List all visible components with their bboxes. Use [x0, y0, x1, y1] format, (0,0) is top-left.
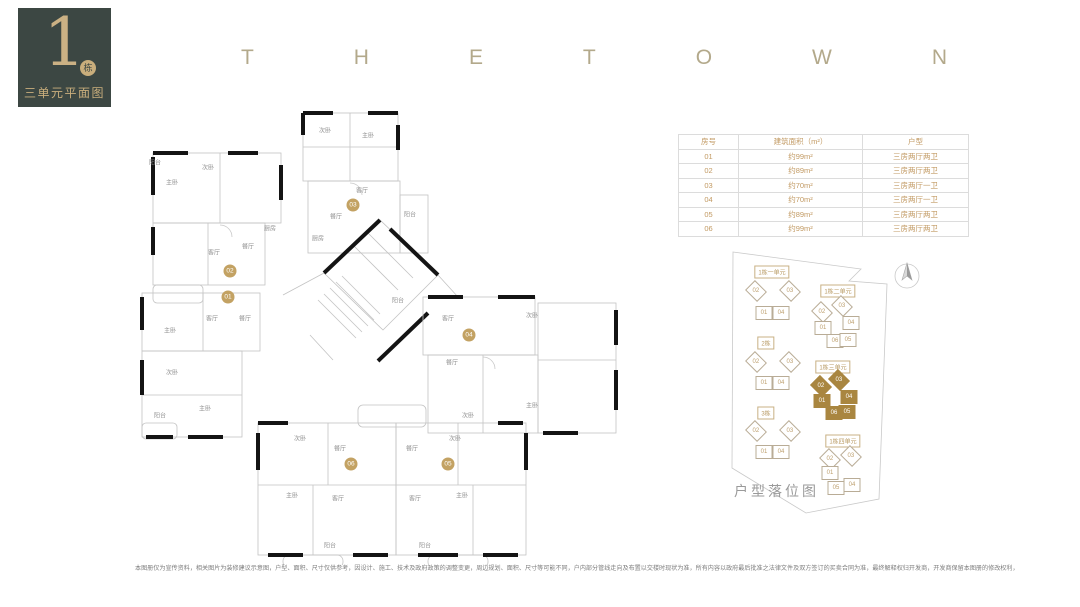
- compass-icon: [895, 263, 919, 288]
- site-unit-box: 04: [843, 316, 860, 330]
- cluster-label: 1栋三单元: [815, 361, 850, 374]
- table-cell: 三房两厅两卫: [863, 149, 969, 164]
- room-label: 餐厅: [242, 242, 254, 251]
- table-cell: 三房两厅两卫: [863, 207, 969, 222]
- title-letter: T: [583, 46, 596, 70]
- title-letter: W: [812, 46, 832, 70]
- room-label: 餐厅: [239, 314, 251, 323]
- table-row: 01约99m²三房两厅两卫: [679, 149, 969, 164]
- title-letter: E: [469, 46, 483, 70]
- room-label: 次卧: [166, 368, 178, 377]
- site-unit-box: 01: [822, 466, 839, 480]
- room-label: 客厅: [206, 314, 218, 323]
- unit-number-badge: 01: [222, 291, 235, 304]
- room-label: 次卧: [449, 434, 461, 443]
- table-header-row: 房号 建筑面积（m²） 户型: [679, 135, 969, 150]
- floor-plan-svg: [128, 105, 628, 565]
- table-cell: 约99m²: [739, 222, 863, 237]
- table-cell: 02: [679, 164, 739, 179]
- table-row: 03约70m²三房两厅一卫: [679, 178, 969, 193]
- table-cell: 约70m²: [739, 178, 863, 193]
- room-label: 客厅: [208, 248, 220, 257]
- room-label: 厨房: [264, 224, 276, 233]
- title-letter: H: [354, 46, 369, 70]
- room-label: 餐厅: [406, 444, 418, 453]
- site-unit-box: 01: [756, 376, 773, 390]
- tower-suffix-circle: 栋: [80, 60, 96, 76]
- area-table-body: 01约99m²三房两厅两卫02约89m²三房两厅两卫03约70m²三房两厅一卫0…: [679, 149, 969, 236]
- col-header-room-no: 房号: [679, 135, 739, 150]
- table-row: 05约89m²三房两厅两卫: [679, 207, 969, 222]
- tower-badge: 1 栋 三单元平面图: [18, 8, 111, 107]
- table-row: 02约89m²三房两厅两卫: [679, 164, 969, 179]
- site-plan-caption: 户型落位图: [734, 481, 819, 501]
- page-title: T H E T O W N: [241, 46, 947, 70]
- room-label: 主卧: [526, 401, 538, 410]
- tower-subtitle: 三单元平面图: [18, 84, 111, 101]
- room-label: 次卧: [294, 434, 306, 443]
- table-cell: 三房两厅一卫: [863, 193, 969, 208]
- table-cell: 约89m²: [739, 164, 863, 179]
- floor-plan: [128, 105, 628, 565]
- table-row: 06约99m²三房两厅两卫: [679, 222, 969, 237]
- unit-number-badge: 06: [345, 458, 358, 471]
- room-label: 主卧: [166, 178, 178, 187]
- room-label: 主卧: [164, 326, 176, 335]
- title-letter: T: [241, 46, 254, 70]
- table-cell: 04: [679, 193, 739, 208]
- room-label: 餐厅: [330, 212, 342, 221]
- room-label: 主卧: [362, 131, 374, 140]
- room-label: 阳台: [324, 541, 336, 550]
- room-label: 厨房: [312, 234, 324, 243]
- site-unit-box: 05: [840, 333, 857, 347]
- room-label: 次卧: [526, 311, 538, 320]
- site-unit-box: 04: [844, 478, 861, 492]
- room-label: 阳台: [149, 158, 161, 167]
- room-label: 阳台: [154, 411, 166, 420]
- tower-number: 1: [18, 10, 111, 76]
- table-cell: 三房两厅一卫: [863, 178, 969, 193]
- title-letter: N: [932, 46, 947, 70]
- cluster-label: 1栋二单元: [820, 285, 855, 298]
- table-cell: 05: [679, 207, 739, 222]
- table-cell: 06: [679, 222, 739, 237]
- site-unit-box: 04: [773, 376, 790, 390]
- site-unit-box: 01: [756, 306, 773, 320]
- col-header-layout: 户型: [863, 135, 969, 150]
- col-header-area: 建筑面积（m²）: [739, 135, 863, 150]
- room-label: 主卧: [199, 404, 211, 413]
- unit-area-table: 房号 建筑面积（m²） 户型 01约99m²三房两厅两卫02约89m²三房两厅两…: [678, 134, 969, 237]
- room-label: 客厅: [332, 494, 344, 503]
- room-label: 次卧: [202, 163, 214, 172]
- room-label: 餐厅: [446, 358, 458, 367]
- site-unit-box: 05: [839, 405, 856, 419]
- room-label: 次卧: [319, 126, 331, 135]
- room-label: 阳台: [392, 296, 404, 305]
- unit-number-badge: 04: [463, 329, 476, 342]
- site-unit-box: 04: [773, 445, 790, 459]
- table-cell: 约99m²: [739, 149, 863, 164]
- room-label: 客厅: [442, 314, 454, 323]
- table-cell: 01: [679, 149, 739, 164]
- room-label: 主卧: [286, 491, 298, 500]
- room-label: 客厅: [409, 494, 421, 503]
- table-cell: 三房两厅两卫: [863, 222, 969, 237]
- table-cell: 03: [679, 178, 739, 193]
- room-label: 阳台: [404, 210, 416, 219]
- site-unit-box: 01: [756, 445, 773, 459]
- site-unit-box: 04: [773, 306, 790, 320]
- cluster-label: 2栋: [757, 337, 774, 350]
- cluster-label: 1栋四单元: [825, 435, 860, 448]
- room-label: 主卧: [456, 491, 468, 500]
- brochure-page: 1 栋 三单元平面图 T H E T O W N: [0, 0, 1080, 607]
- room-label: 阳台: [419, 541, 431, 550]
- site-unit-box: 04: [841, 390, 858, 404]
- disclaimer-text: 本图册仅为宣传资料，相关图片为装修建议示意图，户型、面积、尺寸仅供参考，因设计、…: [135, 563, 1017, 572]
- table-cell: 约70m²: [739, 193, 863, 208]
- table-cell: 约89m²: [739, 207, 863, 222]
- unit-number-badge: 02: [224, 265, 237, 278]
- site-unit-box: 01: [815, 321, 832, 335]
- unit-number-badge: 03: [347, 199, 360, 212]
- unit-number-badge: 05: [442, 458, 455, 471]
- table-cell: 三房两厅两卫: [863, 164, 969, 179]
- room-label: 次卧: [462, 411, 474, 420]
- cluster-label: 3栋: [757, 407, 774, 420]
- table-row: 04约70m²三房两厅一卫: [679, 193, 969, 208]
- site-unit-box: 05: [828, 481, 845, 495]
- room-label: 客厅: [356, 186, 368, 195]
- room-label: 餐厅: [334, 444, 346, 453]
- cluster-label: 1栋一单元: [754, 266, 789, 279]
- title-letter: O: [696, 46, 712, 70]
